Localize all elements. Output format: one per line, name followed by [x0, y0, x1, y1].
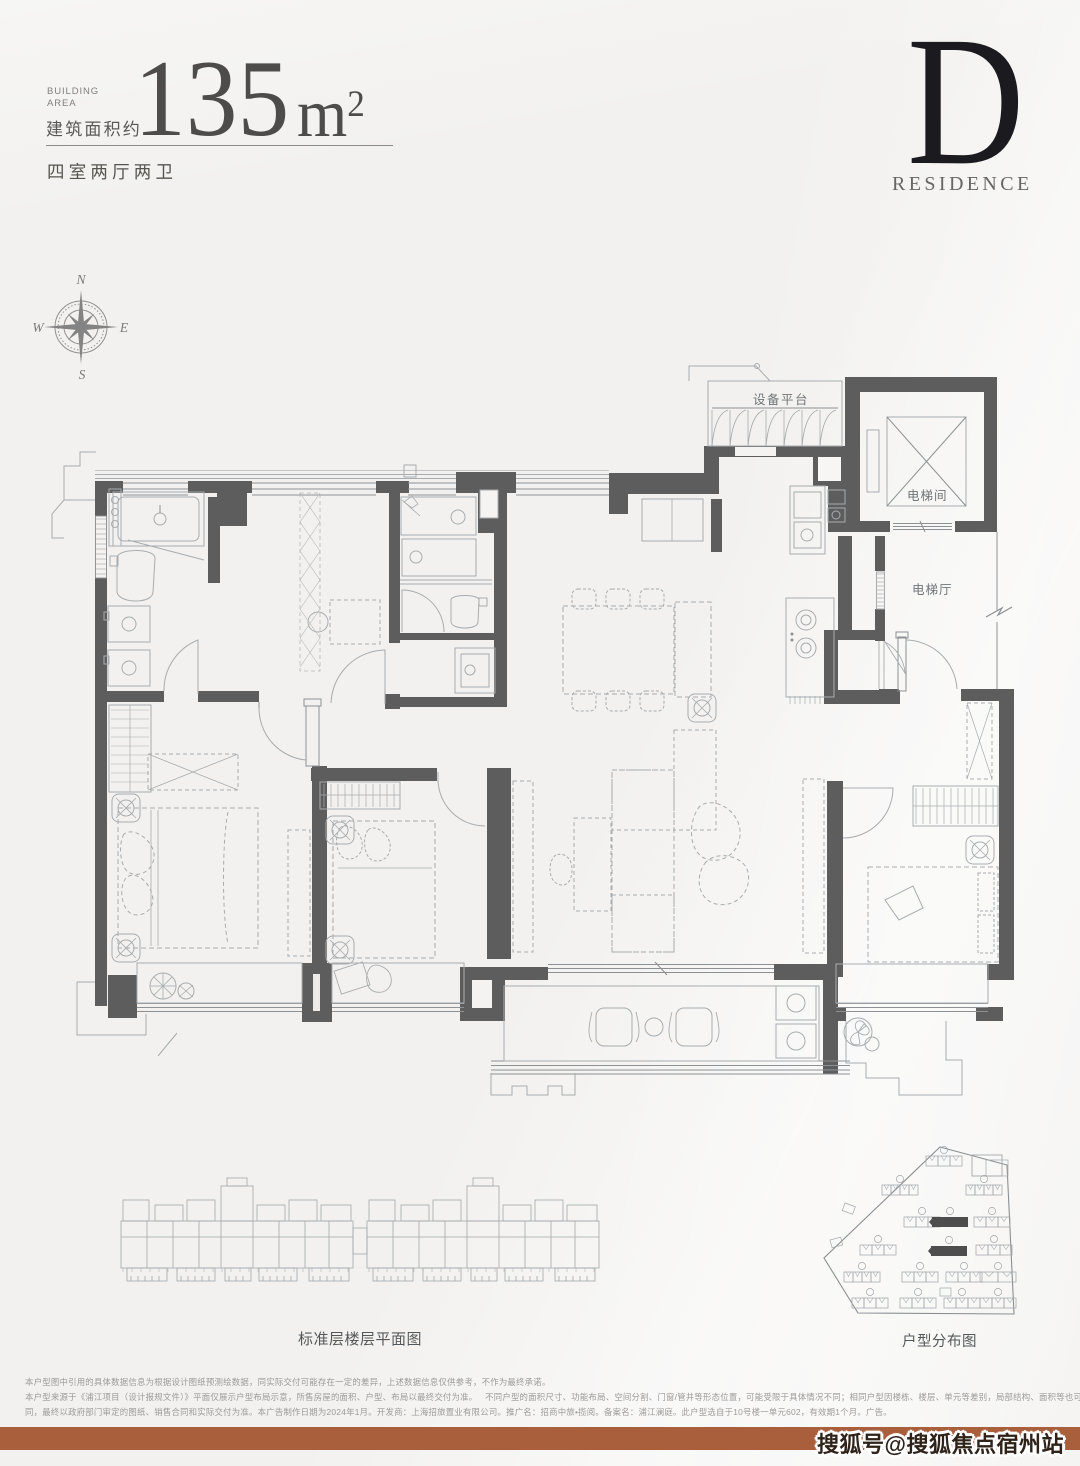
- svg-text:E: E: [119, 320, 129, 335]
- svg-text:W: W: [32, 320, 45, 335]
- svg-text:设备平台: 设备平台: [753, 392, 809, 407]
- svg-text:N: N: [75, 272, 86, 287]
- svg-text:电梯间: 电梯间: [907, 489, 948, 503]
- svg-text:电梯厅: 电梯厅: [912, 583, 953, 597]
- svg-text:S: S: [79, 367, 86, 382]
